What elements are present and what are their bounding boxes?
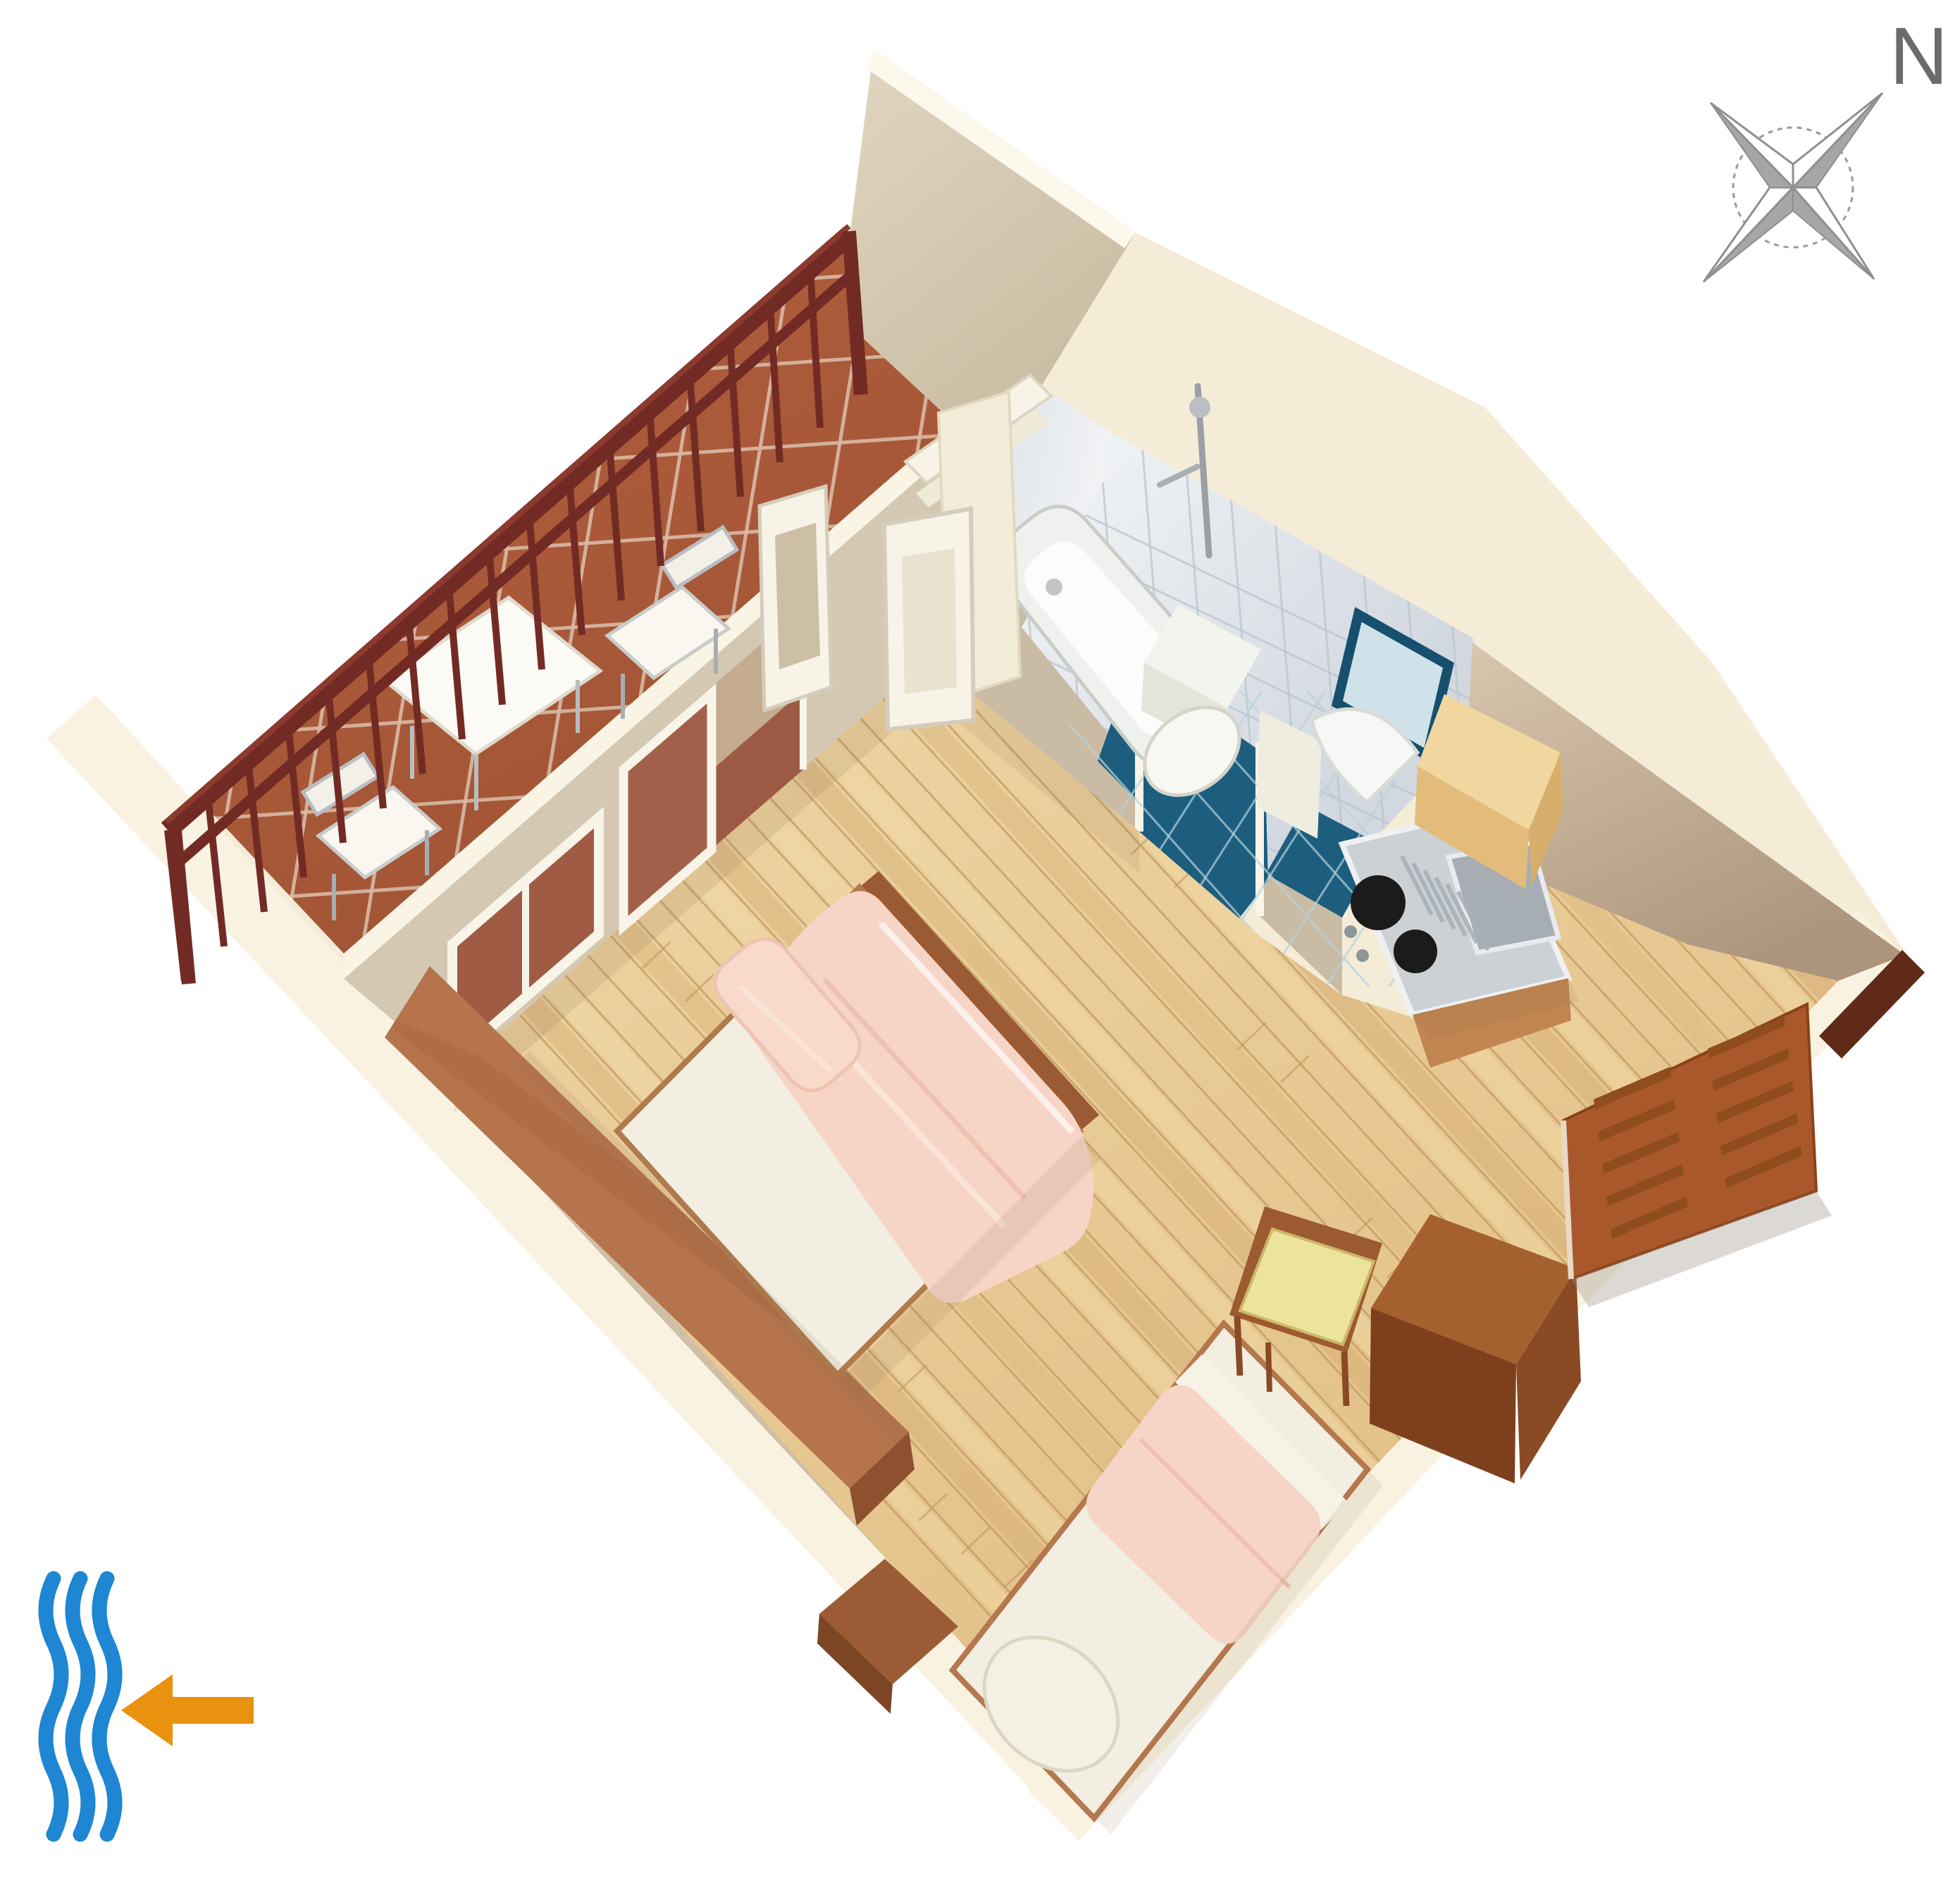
svg-text:N: N bbox=[1890, 11, 1948, 101]
